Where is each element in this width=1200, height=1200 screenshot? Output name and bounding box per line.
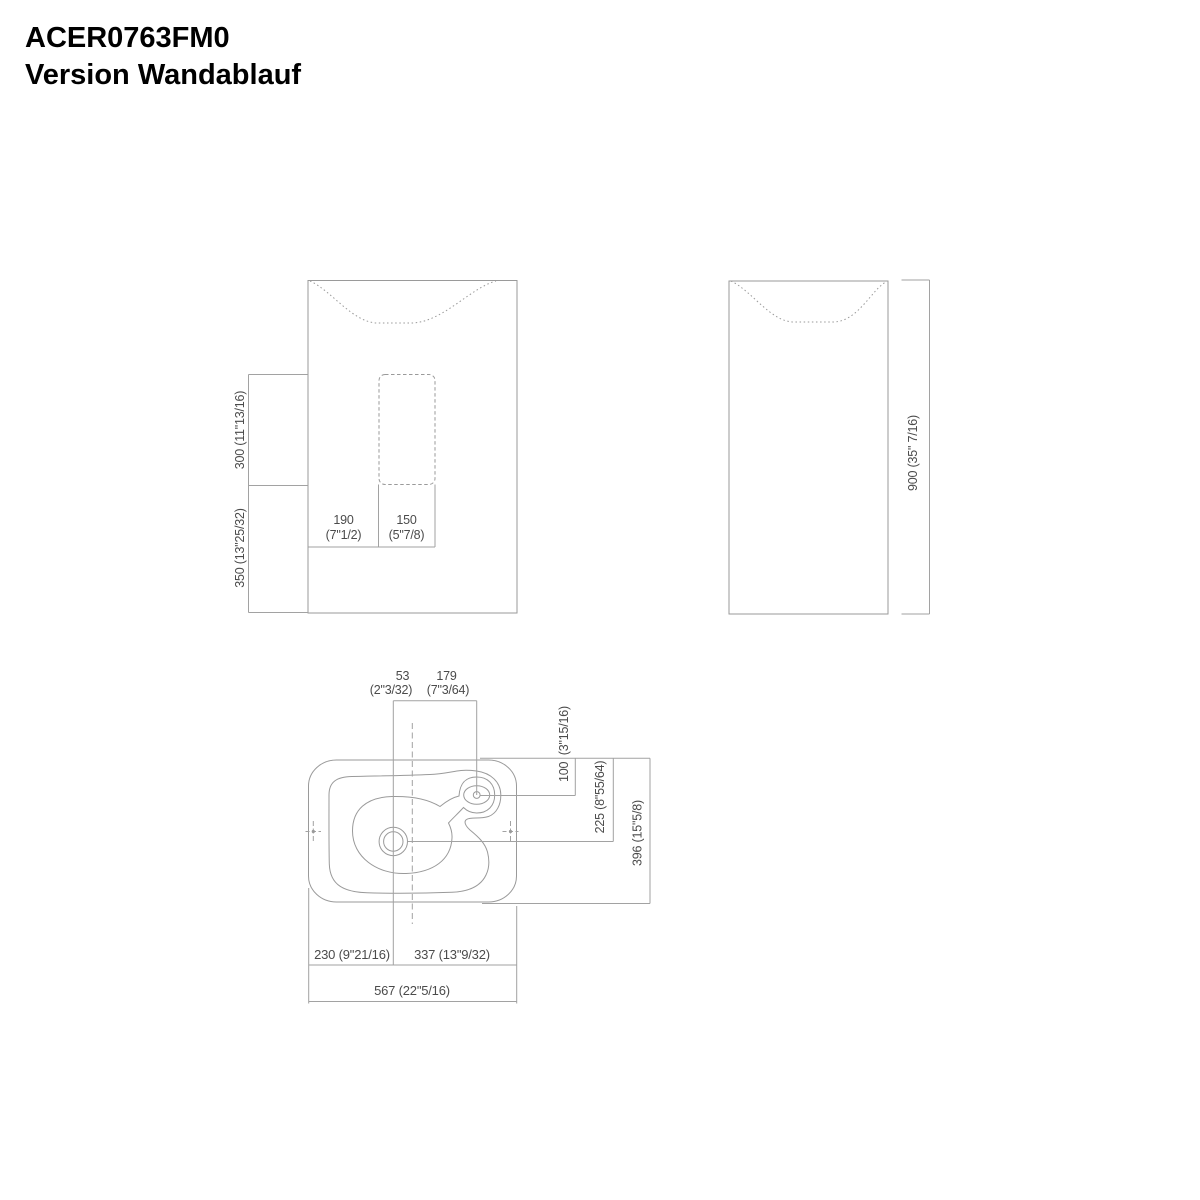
dim-230: 230 (9"21/16) — [314, 947, 390, 962]
dim-396: 396 (15"5/8) — [631, 800, 645, 866]
basin-wall-contour — [353, 777, 495, 874]
dim-53-in: (2"3/32) — [370, 683, 412, 697]
dim-225: 225 (8"55/64) — [593, 761, 607, 834]
dimension-lines-300-350 — [249, 375, 309, 613]
dim-900: 900 (35" 7/16) — [906, 415, 920, 491]
dim-350: 350 (13"25/32) — [233, 508, 247, 588]
dimension-lines-depth — [408, 758, 650, 903]
dim-190-in: (7"1/2) — [326, 528, 362, 542]
front-view: 190 (7"1/2) 150 (5"7/8) 300 (11"13/16) 3… — [233, 281, 517, 614]
dim-150-mm: 150 — [396, 513, 417, 527]
dim-100: 100 (3"15/16) — [557, 706, 571, 782]
left-center-mark — [306, 821, 322, 842]
pedestal-front-outline — [308, 281, 517, 614]
dim-150-in: (5"7/8) — [389, 528, 425, 542]
side-view: 900 (35" 7/16) — [729, 280, 930, 614]
basin-dip-curve — [310, 281, 496, 323]
dim-53-mm: 53 — [396, 669, 410, 683]
dim-567: 567 (22"5/16) — [374, 983, 450, 998]
dim-179-mm: 179 — [436, 669, 457, 683]
drawing-canvas: 190 (7"1/2) 150 (5"7/8) 300 (11"13/16) 3… — [0, 0, 1200, 1200]
technical-drawing-page: ACER0763FM0 Version Wandablauf 190 (7"1/… — [0, 0, 1200, 1200]
dim-190-mm: 190 — [333, 513, 354, 527]
dim-337: 337 (13"9/32) — [414, 947, 490, 962]
basin-inner-rim — [329, 770, 501, 893]
top-view: 53 (2"3/32) 179 (7"3/64) 100 (3"15/16) 2… — [306, 669, 651, 1004]
basin-dip-curve-side — [731, 281, 886, 322]
wall-drain-slot — [379, 375, 435, 485]
pedestal-side-outline — [729, 281, 888, 614]
dim-179-in: (7"3/64) — [427, 683, 469, 697]
dim-300: 300 (11"13/16) — [233, 391, 247, 470]
